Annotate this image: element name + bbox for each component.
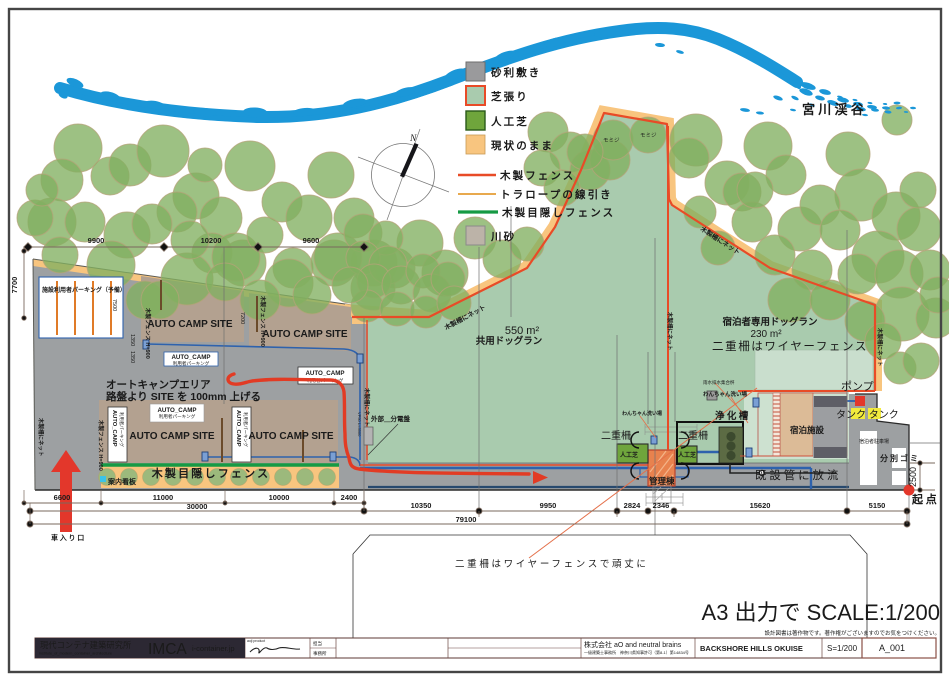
- svg-text:9900: 9900: [88, 236, 105, 245]
- svg-text:institute_of_modern_container_: institute_of_modern_container_architectu…: [39, 652, 112, 656]
- svg-text:モミジ: モミジ: [603, 137, 620, 144]
- svg-text:トラロープの線引き: トラロープの線引き: [500, 188, 613, 201]
- svg-text:30000: 30000: [187, 502, 208, 511]
- svg-text:10350: 10350: [411, 501, 432, 510]
- svg-text:二重柵はワイヤーフェンス: 二重柵はワイヤーフェンス: [712, 339, 868, 353]
- svg-text:既設管に放流: 既設管に放流: [755, 468, 841, 482]
- svg-text:わんちゃん洗い場: わんちゃん洗い場: [703, 390, 748, 398]
- svg-text:ポンプ: ポンプ: [841, 380, 874, 393]
- svg-text:AUTO_CAMP: AUTO_CAMP: [157, 407, 196, 414]
- svg-text:モミジ: モミジ: [640, 132, 657, 139]
- svg-text:7500: 7500: [111, 299, 117, 311]
- svg-text:木製目隠しフェンス: 木製目隠しフェンス: [151, 466, 271, 480]
- svg-text:雨水排水集合桝: 雨水排水集合桝: [703, 379, 735, 386]
- svg-text:路盤より SITE を 100mm 上げる: 路盤より SITE を 100mm 上げる: [106, 390, 261, 403]
- svg-text:宿泊者専用ドッグラン: 宿泊者専用ドッグラン: [722, 316, 817, 328]
- svg-text:i-container.jp: i-container.jp: [192, 644, 235, 653]
- svg-text:人工芝: 人工芝: [678, 451, 696, 459]
- svg-text:施設利用者パーキング（予備）: 施設利用者パーキング（予備）: [42, 286, 126, 294]
- svg-text:設計図書は著作物です。著作権がございますのでお気をつけくださ: 設計図書は著作物です。著作権がございますのでお気をつけください。: [765, 629, 940, 637]
- svg-text:木製フェンス H=900: 木製フェンス H=900: [144, 307, 152, 359]
- svg-text:車入り口: 車入り口: [51, 533, 86, 542]
- svg-text:案内看板: 案内看板: [108, 477, 137, 486]
- svg-text:79100: 79100: [456, 515, 477, 524]
- svg-text:木製柵にネット: 木製柵にネット: [37, 417, 45, 457]
- svg-text:AUTO_CAMP: AUTO_CAMP: [235, 410, 241, 447]
- svg-text:宿泊施設: 宿泊施設: [790, 425, 825, 435]
- svg-text:木製柵にネット: 木製柵にネット: [666, 311, 674, 351]
- svg-text:7700: 7700: [10, 277, 19, 294]
- svg-text:オートキャンプエリア: オートキャンプエリア: [106, 378, 211, 391]
- svg-text:N: N: [409, 134, 417, 144]
- svg-text:現代コンテナ建築研究所: 現代コンテナ建築研究所: [40, 640, 131, 650]
- svg-text:木製柵にネット: 木製柵にネット: [876, 327, 884, 367]
- svg-text:1350: 1350: [129, 334, 135, 346]
- svg-text:人工芝: 人工芝: [491, 115, 529, 128]
- svg-text:現状のまま: 現状のまま: [491, 139, 554, 152]
- svg-text:宮川渓谷: 宮川渓谷: [802, 102, 867, 117]
- svg-text:10200: 10200: [201, 236, 222, 245]
- svg-text:利用者パーキング: 利用者パーキング: [242, 412, 249, 448]
- svg-text:5150: 5150: [869, 501, 886, 510]
- svg-text:二重柵はワイヤーフェンスで頑丈に: 二重柵はワイヤーフェンスで頑丈に: [455, 558, 649, 570]
- svg-text:BACKSHORE HILLS OKUISE: BACKSHORE HILLS OKUISE: [700, 644, 803, 653]
- svg-text:IMCA: IMCA: [148, 641, 187, 658]
- svg-text:外部＿分電盤: 外部＿分電盤: [371, 414, 411, 423]
- svg-text:2346: 2346: [653, 501, 670, 510]
- svg-text:共用ドッグラン: 共用ドッグラン: [476, 335, 543, 347]
- svg-text:浄化槽: 浄化槽: [715, 410, 751, 422]
- svg-text:2500: 2500: [908, 467, 918, 487]
- svg-text:一級建築士事務所 神奈川県知事許可（第8-1）第14834号: 一級建築士事務所 神奈川県知事許可（第8-1）第14834号: [584, 649, 689, 655]
- svg-text:利用者パーキング: 利用者パーキング: [159, 413, 196, 420]
- svg-text:S=1/200: S=1/200: [827, 644, 858, 653]
- svg-text:木製フェンス: 木製フェンス: [499, 169, 575, 182]
- svg-text:木製柵にネット: 木製柵にネット: [363, 387, 371, 427]
- svg-text:230 m²: 230 m²: [750, 329, 782, 340]
- svg-text:2824: 2824: [624, 501, 642, 510]
- svg-text:1350: 1350: [129, 351, 135, 363]
- svg-text:管理棟: 管理棟: [649, 476, 675, 486]
- svg-text:利用者パーキング: 利用者パーキング: [173, 360, 210, 367]
- svg-text:AUTO CAMP SITE: AUTO CAMP SITE: [129, 431, 215, 442]
- svg-text:二重柵: 二重柵: [601, 429, 631, 442]
- svg-text:木製目隠しフェンス: 木製目隠しフェンス: [501, 206, 615, 219]
- svg-text:A3 出力で SCALE:1/200: A3 出力で SCALE:1/200: [702, 600, 940, 625]
- svg-text:11000: 11000: [153, 493, 173, 502]
- svg-text:9600: 9600: [303, 236, 320, 245]
- svg-text:木製フェンス H=900: 木製フェンス H=900: [97, 419, 105, 471]
- svg-text:AUTO CAMP SITE: AUTO CAMP SITE: [262, 329, 348, 340]
- svg-text:9950: 9950: [540, 501, 557, 510]
- svg-text:A_001: A_001: [879, 643, 905, 653]
- svg-text:aoji product: aoji product: [247, 639, 265, 643]
- svg-text:VP50 L=3500: VP50 L=3500: [357, 412, 362, 437]
- svg-text:AUTO_CAMP: AUTO_CAMP: [171, 354, 210, 361]
- svg-text:人工芝: 人工芝: [620, 451, 638, 459]
- svg-text:AUTO_CAMP: AUTO_CAMP: [111, 410, 117, 447]
- svg-text:株式会社 aO and neutral brains: 株式会社 aO and neutral brains: [584, 640, 682, 649]
- svg-text:二重柵: 二重柵: [678, 429, 708, 442]
- svg-text:AUTO CAMP SITE: AUTO CAMP SITE: [147, 319, 233, 330]
- svg-text:10000: 10000: [269, 493, 290, 502]
- svg-text:分別ゴミ: 分別ゴミ: [880, 453, 920, 463]
- svg-text:砂利敷き: 砂利敷き: [490, 66, 541, 79]
- svg-text:起点: 起点: [911, 492, 940, 506]
- svg-text:6600: 6600: [54, 493, 71, 502]
- svg-text:AUTO_CAMP: AUTO_CAMP: [305, 370, 344, 377]
- svg-text:宿泊者駐車場: 宿泊者駐車場: [859, 438, 889, 445]
- svg-text:芝張り: 芝張り: [491, 90, 529, 103]
- svg-text:わんちゃん洗い場: わんちゃん洗い場: [622, 410, 662, 417]
- svg-text:川砂: 川砂: [490, 230, 516, 243]
- svg-text:AUTO CAMP SITE: AUTO CAMP SITE: [248, 431, 334, 442]
- svg-text:担当: 担当: [313, 640, 322, 647]
- svg-text:利用者パーキング: 利用者パーキング: [118, 412, 125, 448]
- svg-text:2400: 2400: [341, 493, 358, 502]
- svg-text:事務所: 事務所: [313, 650, 327, 657]
- svg-text:15620: 15620: [750, 501, 771, 510]
- svg-text:7200: 7200: [239, 312, 245, 324]
- svg-text:タンク タンク: タンク タンク: [836, 409, 899, 421]
